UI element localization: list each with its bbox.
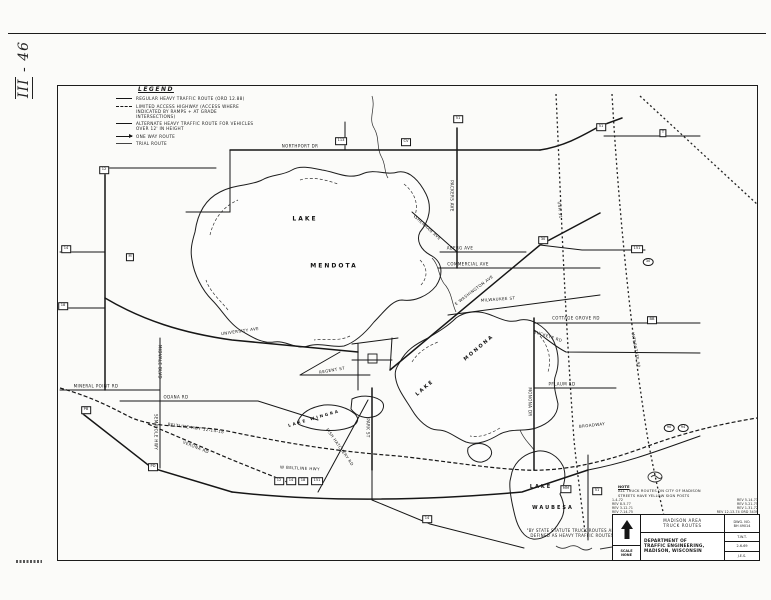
route-shield: 18 xyxy=(298,477,308,485)
drawing-title: MADISON AREA TRUCK ROUTES xyxy=(641,515,724,533)
dwg-number: BH 49014 xyxy=(734,524,751,528)
map-note: NOTE ALL TRUCK ROUTES ON CITY OF MADISON… xyxy=(612,485,758,515)
route-shield: MM xyxy=(560,485,571,493)
route-shield: PB xyxy=(81,406,91,414)
interstate-diagonal-ne xyxy=(640,96,758,205)
route-shield: 30 xyxy=(643,258,654,266)
route-shield: CV xyxy=(401,138,411,146)
route-shield: 18 xyxy=(58,302,68,310)
route-shield: 94 xyxy=(678,424,689,432)
drawing-title-line2: TRUCK ROUTES xyxy=(663,524,701,529)
title-block-right-column: DWG. NO. BH 49014 T.W.T. 2-6-69 J.E.S. xyxy=(725,515,759,560)
route-shield: 90 xyxy=(664,424,675,432)
scanned-map-page: { "page": { "margin_annotation_roman": "… xyxy=(0,0,771,600)
route-shield: BB xyxy=(647,316,657,324)
road-name-label: PACKERS AVE xyxy=(450,180,455,212)
department-name: DEPARTMENT OF TRAFFIC ENGINEERING, MADIS… xyxy=(641,533,724,560)
legend-sample-arrow xyxy=(116,136,132,137)
road-name-label: COMMERCIAL AVE xyxy=(447,262,489,267)
route-shield: PD xyxy=(148,463,158,471)
legend-item: ONE WAY ROUTE xyxy=(116,134,254,139)
legend-label: TRIAL ROUTE xyxy=(136,141,167,146)
road-name-label: ODANA RD xyxy=(164,395,189,400)
revision-column-right: REV 5-14-73REV 5-21-75REV 1-31-72REV 12-… xyxy=(676,499,758,515)
legend-label: ALTERNATE HEAVY TRAFFIC ROUTE FOR VEHICL… xyxy=(136,121,254,131)
lake-name-label: WAUBESA xyxy=(532,505,574,511)
route-shield: 151 xyxy=(631,245,643,253)
route-shield: 51 xyxy=(453,115,463,123)
department-line3: MADISON, WISCONSIN xyxy=(644,549,724,554)
title-block: SCALE NONE MADISON AREA TRUCK ROUTES DEP… xyxy=(612,514,760,561)
legend-sample-trial xyxy=(116,143,132,144)
route-shield: 14 xyxy=(286,477,296,485)
lake-mendota-outline xyxy=(191,167,441,347)
interstate-94-line xyxy=(612,94,664,516)
legend-sample-solid-thin xyxy=(116,123,132,124)
route-shield: 30 xyxy=(538,236,548,244)
route-shield: M xyxy=(126,253,134,261)
note-lines: ALL TRUCK ROUTES ON CITY OF MADISONSTREE… xyxy=(618,489,758,498)
fine-print-mark xyxy=(16,560,42,563)
mud-lake-outline xyxy=(468,444,492,463)
title-block-center-column: MADISON AREA TRUCK ROUTES DEPARTMENT OF … xyxy=(641,515,725,560)
route-shield: 14 xyxy=(422,515,432,523)
route-shield: 51 xyxy=(592,487,602,495)
legend-label: ONE WAY ROUTE xyxy=(136,134,175,139)
lake-name-label: LAKE xyxy=(292,216,317,223)
monona-bay-outline xyxy=(351,396,383,417)
capitol-square xyxy=(368,354,377,363)
road-name-label: COTTAGE GROVE RD xyxy=(552,316,600,321)
dwg-number-cell: DWG. NO. BH 49014 xyxy=(725,515,759,533)
lake-name-label: LAKE xyxy=(530,484,552,490)
road-name-label: SEMINOLE HWY xyxy=(154,414,159,450)
road-name-label: PARK ST xyxy=(366,418,371,437)
legend: LEGEND REGULAR HEAVY TRAFFIC ROUTE (ORD … xyxy=(116,86,254,149)
legend-sample-dashed xyxy=(116,106,132,107)
road-name-label: MONONA DR xyxy=(528,387,533,416)
legend-title: LEGEND xyxy=(138,86,254,93)
road-name-label: NORTHPORT DR xyxy=(282,144,319,149)
road-name-label: MIDVALE BLVD xyxy=(158,345,163,379)
date-cell: 2-6-69 xyxy=(725,542,759,551)
checked-by-cell: J.E.S. xyxy=(725,552,759,560)
legend-item: LIMITED ACCESS HIGHWAY (ACCESS WHERE IND… xyxy=(116,104,254,119)
drawn-by-cell: T.W.T. xyxy=(725,533,759,542)
title-block-left-column: SCALE NONE xyxy=(613,515,641,560)
north-arrow-box xyxy=(613,515,640,546)
yahara-river-north xyxy=(372,96,388,178)
legend-item: ALTERNATE HEAVY TRAFFIC ROUTE FOR VEHICL… xyxy=(116,121,254,131)
revision-column-left: 1-4-72REV 8-5-77REV 3-12-71REV 7-14-75 xyxy=(612,499,670,515)
route-shield: 14 xyxy=(61,245,71,253)
scale-value: NONE xyxy=(621,553,632,557)
revision-list: 1-4-72REV 8-5-77REV 3-12-71REV 7-14-75 R… xyxy=(612,499,758,515)
route-shield: T xyxy=(659,129,666,137)
scale-cell: SCALE NONE xyxy=(613,546,640,560)
route-shield: 12 xyxy=(99,166,109,174)
legend-items: REGULAR HEAVY TRAFFIC ROUTE (ORD 12.88)L… xyxy=(116,96,254,146)
road-name-label: MINERAL POINT RD xyxy=(74,384,119,389)
legend-item: REGULAR HEAVY TRAFFIC ROUTE (ORD 12.88) xyxy=(116,96,254,101)
legend-label: REGULAR HEAVY TRAFFIC ROUTE (ORD 12.88) xyxy=(136,96,245,101)
road-name-label: PFLAUM RD xyxy=(549,382,576,387)
north-arrow-icon xyxy=(619,519,635,541)
route-shield: 12 xyxy=(274,477,284,485)
route-shield: 113 xyxy=(335,137,347,145)
legend-item: TRIAL ROUTE xyxy=(116,141,254,146)
yahara-river-south xyxy=(520,430,534,450)
legend-sample-solid xyxy=(116,98,132,99)
handwritten-scribble xyxy=(556,546,612,550)
lake-name-label: MENDOTA xyxy=(310,263,357,270)
route-shield: 151 xyxy=(311,477,323,485)
road-name-label: ABERG AVE xyxy=(447,246,474,251)
legend-label: LIMITED ACCESS HIGHWAY (ACCESS WHERE IND… xyxy=(136,104,254,119)
route-shield: 51 xyxy=(596,123,606,131)
lake-waubesa-outline xyxy=(510,451,565,539)
